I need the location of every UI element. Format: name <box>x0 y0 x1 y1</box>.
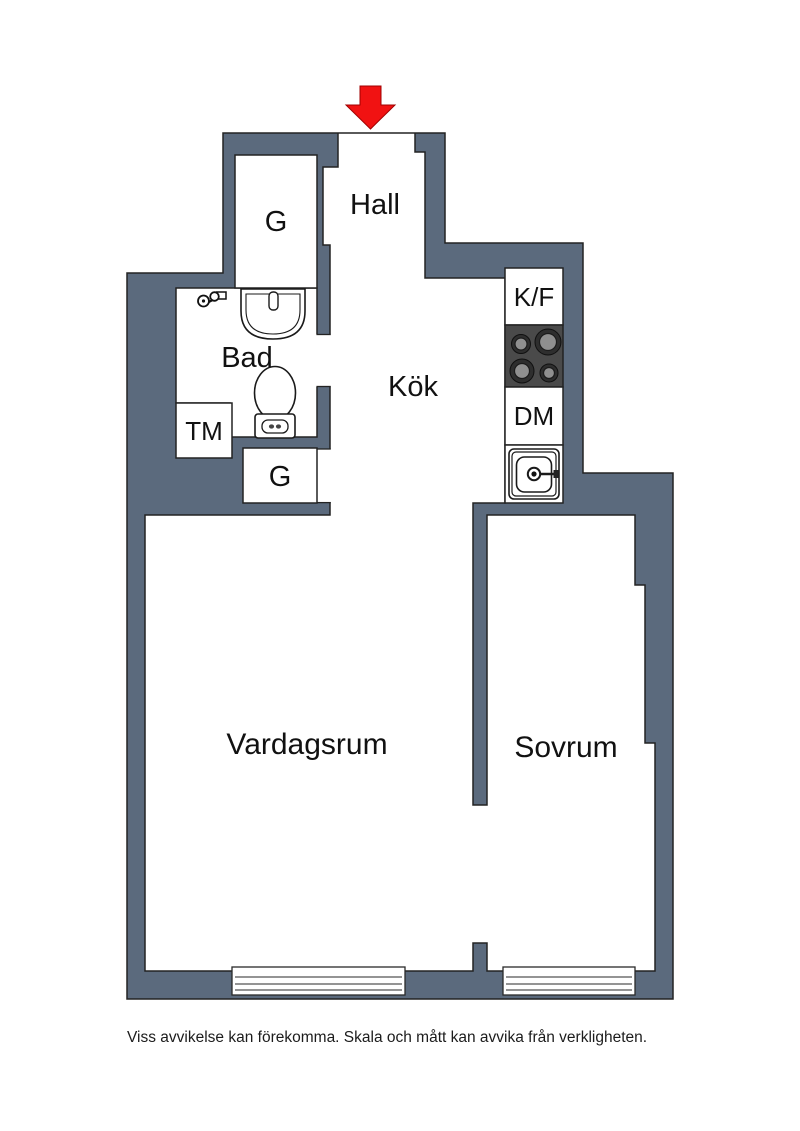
bedroom-label: Sovrum <box>514 731 617 764</box>
bedroom-window <box>503 967 635 995</box>
washing-machine-label: TM <box>185 416 223 446</box>
closet-lower-door-opening <box>316 449 332 502</box>
closet-top-label: G <box>265 206 288 238</box>
floorplan-page: Hall G Bad TM G Kök K/F DM Vardagsrum So… <box>0 0 800 1131</box>
dishwasher-label: DM <box>514 401 554 431</box>
disclaimer-text: Viss avvikelse kan förekomma. Skala och … <box>127 1029 647 1046</box>
entrance-arrow-icon <box>346 86 395 129</box>
bathroom-door-opening <box>316 334 332 387</box>
kitchen-label: Kök <box>388 371 438 403</box>
living-room-label: Vardagsrum <box>226 728 387 761</box>
bathroom-label: Bad <box>221 342 273 374</box>
shower-mixer-icon <box>198 292 226 307</box>
fridge-freezer-label: K/F <box>514 282 554 312</box>
wall-structure <box>127 133 673 999</box>
closet-lower-label: G <box>269 461 292 493</box>
hall-label: Hall <box>350 189 400 221</box>
living-room-window <box>232 967 405 995</box>
floorplan-drawing: Hall G Bad TM G Kök K/F DM Vardagsrum So… <box>0 0 800 1131</box>
toilet-icon <box>255 367 296 439</box>
washbasin-icon <box>241 289 305 339</box>
